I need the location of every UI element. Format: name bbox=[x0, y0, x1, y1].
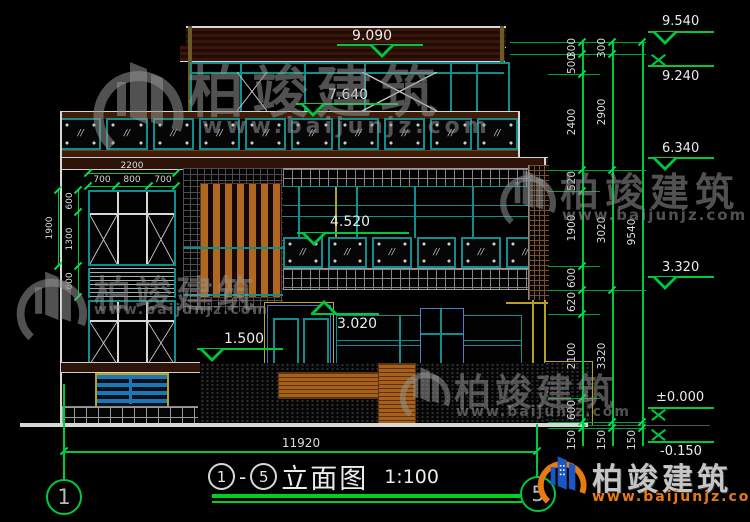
transom-line bbox=[283, 205, 545, 206]
dim-value: 9540 bbox=[626, 219, 638, 246]
level-ext-line bbox=[548, 191, 600, 192]
elevation-label: 6.340 bbox=[662, 141, 699, 156]
terrace-railing: // // // // // // // // // // bbox=[60, 118, 518, 150]
dim-value: 520 bbox=[566, 171, 578, 191]
terrace-edge-right bbox=[518, 112, 520, 157]
glass-panel: // bbox=[328, 237, 368, 268]
glass-hatch-mark: // bbox=[263, 129, 269, 139]
title-axis-from: 1 bbox=[208, 463, 235, 490]
glass-panel: // bbox=[372, 237, 412, 268]
dim-chain-line-outer bbox=[642, 42, 644, 446]
screen-rail bbox=[183, 247, 283, 249]
dim-value: 150 bbox=[596, 430, 608, 450]
elevation-label: -0.150 bbox=[660, 444, 702, 459]
door-leaf bbox=[303, 318, 329, 366]
glass-panel: // bbox=[153, 118, 194, 150]
wood-slat-screen bbox=[200, 183, 282, 298]
level-ext-line bbox=[548, 170, 646, 171]
plan-level-triangle bbox=[300, 104, 326, 117]
dim-value: 1300 bbox=[65, 228, 75, 251]
dim-tick bbox=[172, 182, 180, 190]
plan-level-label: 9.090 bbox=[352, 28, 392, 44]
x-brace-panel bbox=[362, 72, 437, 111]
glass-panel: // bbox=[461, 237, 501, 268]
dim-value: 150 bbox=[566, 430, 578, 450]
watermark-logo-icon bbox=[14, 258, 92, 354]
dim-value: 3020 bbox=[596, 217, 608, 244]
elevation-xmark bbox=[650, 408, 667, 422]
casement-diagonal bbox=[90, 215, 117, 264]
axis-line-5 bbox=[536, 424, 538, 477]
dim-value: 11920 bbox=[282, 436, 320, 450]
mullion bbox=[472, 187, 474, 238]
glass-panel: // bbox=[338, 118, 379, 150]
dim-value: 800 bbox=[123, 175, 140, 185]
title-axis-to: 5 bbox=[250, 463, 277, 490]
dim-value: 2200 bbox=[121, 161, 144, 171]
wall-line-left bbox=[60, 112, 62, 423]
penthouse-mullion bbox=[476, 64, 478, 111]
glass-panel: // bbox=[199, 118, 240, 150]
casement-diagonal bbox=[148, 215, 174, 264]
garage-door-divider bbox=[129, 375, 132, 404]
glass-hatch-mark: // bbox=[216, 129, 222, 139]
window-2f-left bbox=[88, 190, 176, 266]
plan-level-triangle bbox=[199, 349, 225, 362]
dim-value: 600 bbox=[566, 400, 578, 420]
level-ext-line bbox=[548, 266, 600, 267]
roof-band-2 bbox=[180, 46, 505, 62]
floor-slab-1f-left bbox=[61, 362, 200, 373]
dim-value: 2400 bbox=[566, 109, 578, 136]
plan-level-label: 7.640 bbox=[328, 87, 368, 103]
title-name: 立面图 bbox=[281, 457, 368, 496]
title-underline-thin bbox=[212, 501, 522, 503]
glass-panel: // bbox=[245, 118, 286, 150]
glass-panel: // bbox=[430, 118, 471, 150]
title-separator: - bbox=[239, 465, 246, 489]
glass-hatch-mark: // bbox=[344, 247, 350, 257]
brick-course-upper bbox=[283, 168, 545, 188]
penthouse-mullion bbox=[450, 64, 452, 111]
glass-hatch-mark: // bbox=[170, 129, 176, 139]
glass-panel: // bbox=[60, 118, 101, 150]
axis-line-1 bbox=[63, 384, 65, 480]
elevation-label: 9.240 bbox=[662, 69, 699, 84]
dim-chain-line-inner bbox=[582, 42, 584, 446]
glass-hatch-mark: // bbox=[389, 247, 395, 257]
glass-hatch-mark: // bbox=[300, 247, 306, 257]
level-ext-line bbox=[548, 314, 600, 315]
brick-course-lower bbox=[283, 268, 545, 290]
dim-value: 600 bbox=[65, 192, 75, 209]
corner-pier bbox=[528, 165, 549, 300]
cad-elevation-drawing: // // // // // // // // // // // // // /… bbox=[0, 0, 750, 522]
trim-head bbox=[506, 302, 548, 304]
glass-hatch-mark: // bbox=[448, 129, 454, 139]
elevation-triangle bbox=[652, 158, 678, 171]
dim-value: 700 bbox=[93, 175, 110, 185]
plan-level-line bbox=[311, 313, 379, 315]
screen-rail bbox=[183, 294, 283, 296]
mullion bbox=[117, 302, 119, 364]
plan-level-triangle bbox=[369, 45, 395, 58]
dim-value: 150 bbox=[626, 430, 638, 450]
wood-cladding-column bbox=[378, 363, 416, 425]
brand-name: 柏竣建筑 bbox=[592, 454, 732, 499]
plan-level-label: 4.520 bbox=[330, 214, 370, 230]
glass-panel: // bbox=[477, 118, 518, 150]
dim-line bbox=[88, 173, 176, 174]
dim-value: 1900 bbox=[566, 215, 578, 242]
plan-level-label: 1.500 bbox=[224, 331, 264, 347]
dim-value: 2100 bbox=[566, 343, 578, 370]
dim-line-total-width bbox=[64, 451, 537, 453]
level-ext-line bbox=[548, 290, 646, 291]
dim-value: 600 bbox=[566, 268, 578, 288]
glass-hatch-mark: // bbox=[309, 129, 315, 139]
axis-bubble-5: 5 bbox=[520, 476, 556, 512]
glass-panel: // bbox=[384, 118, 425, 150]
mullion bbox=[440, 309, 442, 364]
elevation-line bbox=[648, 441, 714, 443]
axis-number: 1 bbox=[57, 485, 70, 509]
garage-door bbox=[95, 373, 169, 410]
glass-hatch-mark: // bbox=[494, 129, 500, 139]
elevation-line bbox=[648, 65, 714, 67]
transom-line bbox=[283, 216, 545, 217]
casement-diagonal bbox=[148, 322, 174, 364]
dim-line bbox=[58, 190, 59, 266]
glass-panel: // bbox=[291, 118, 332, 150]
glass-hatch-mark: // bbox=[433, 247, 439, 257]
louver-siding bbox=[88, 268, 176, 298]
title-scale: 1:100 bbox=[384, 466, 439, 488]
dim-value: 700 bbox=[154, 175, 171, 185]
ground-line bbox=[20, 423, 588, 427]
wood-cladding-band bbox=[278, 372, 380, 399]
window-1f-blue bbox=[420, 308, 464, 365]
casement-diagonal bbox=[90, 322, 117, 364]
elevation-label: 9.540 bbox=[662, 14, 699, 29]
plan-level-triangle-up bbox=[311, 300, 337, 313]
axis-bubble-1: 1 bbox=[46, 479, 82, 515]
level-ext-line bbox=[548, 398, 600, 399]
window-1f-left bbox=[88, 300, 176, 366]
glass-panel: // bbox=[417, 237, 457, 268]
plan-level-label: 3.020 bbox=[337, 316, 377, 332]
glass-hatch-mark: // bbox=[124, 129, 130, 139]
glass-hatch-mark: // bbox=[355, 129, 361, 139]
glass-panel: // bbox=[106, 118, 147, 150]
dim-tick bbox=[74, 293, 82, 301]
window-band-2f bbox=[283, 186, 545, 238]
elevation-triangle bbox=[652, 32, 678, 45]
level-ext-line bbox=[548, 428, 646, 429]
dim-line bbox=[88, 186, 176, 187]
elevation-label: ±0.000 bbox=[656, 390, 704, 405]
dim-value: 3320 bbox=[596, 343, 608, 370]
dim-value: 600 bbox=[65, 272, 75, 289]
transom-line bbox=[421, 333, 463, 335]
mullion bbox=[414, 187, 416, 238]
dim-chain-line-mid bbox=[612, 42, 614, 446]
door-leaf bbox=[273, 318, 299, 366]
level-ext-line bbox=[548, 422, 646, 423]
brand-site: www.baijunjz.com bbox=[592, 489, 750, 505]
elevation-triangle bbox=[652, 277, 678, 290]
plan-level-triangle bbox=[301, 233, 327, 246]
mullion bbox=[117, 192, 119, 264]
dim-value: 1900 bbox=[45, 217, 55, 240]
title-underline-thick bbox=[212, 494, 522, 498]
glass-hatch-mark: // bbox=[78, 129, 84, 139]
glass-hatch-mark: // bbox=[402, 129, 408, 139]
drawing-title: 1 - 5 立面图 1:100 bbox=[208, 457, 439, 496]
dim-value: 300 bbox=[596, 38, 608, 58]
dim-line bbox=[78, 190, 79, 297]
mullion bbox=[356, 187, 358, 238]
dim-value: 620 bbox=[566, 292, 578, 312]
watermark-site: www.baijunjz.com bbox=[562, 206, 747, 224]
elevation-label: 3.320 bbox=[662, 260, 699, 275]
level-ext-line bbox=[548, 74, 600, 75]
glass-hatch-mark: // bbox=[478, 247, 484, 257]
dim-value: 500 bbox=[566, 54, 578, 74]
dim-value: 2900 bbox=[596, 99, 608, 126]
ground-line-extension bbox=[588, 425, 710, 426]
mullion bbox=[298, 187, 300, 238]
dim-tick bbox=[172, 169, 180, 177]
elevation-xmark bbox=[650, 428, 667, 442]
x-brace-panel bbox=[237, 72, 267, 111]
axis-number: 5 bbox=[531, 482, 544, 506]
